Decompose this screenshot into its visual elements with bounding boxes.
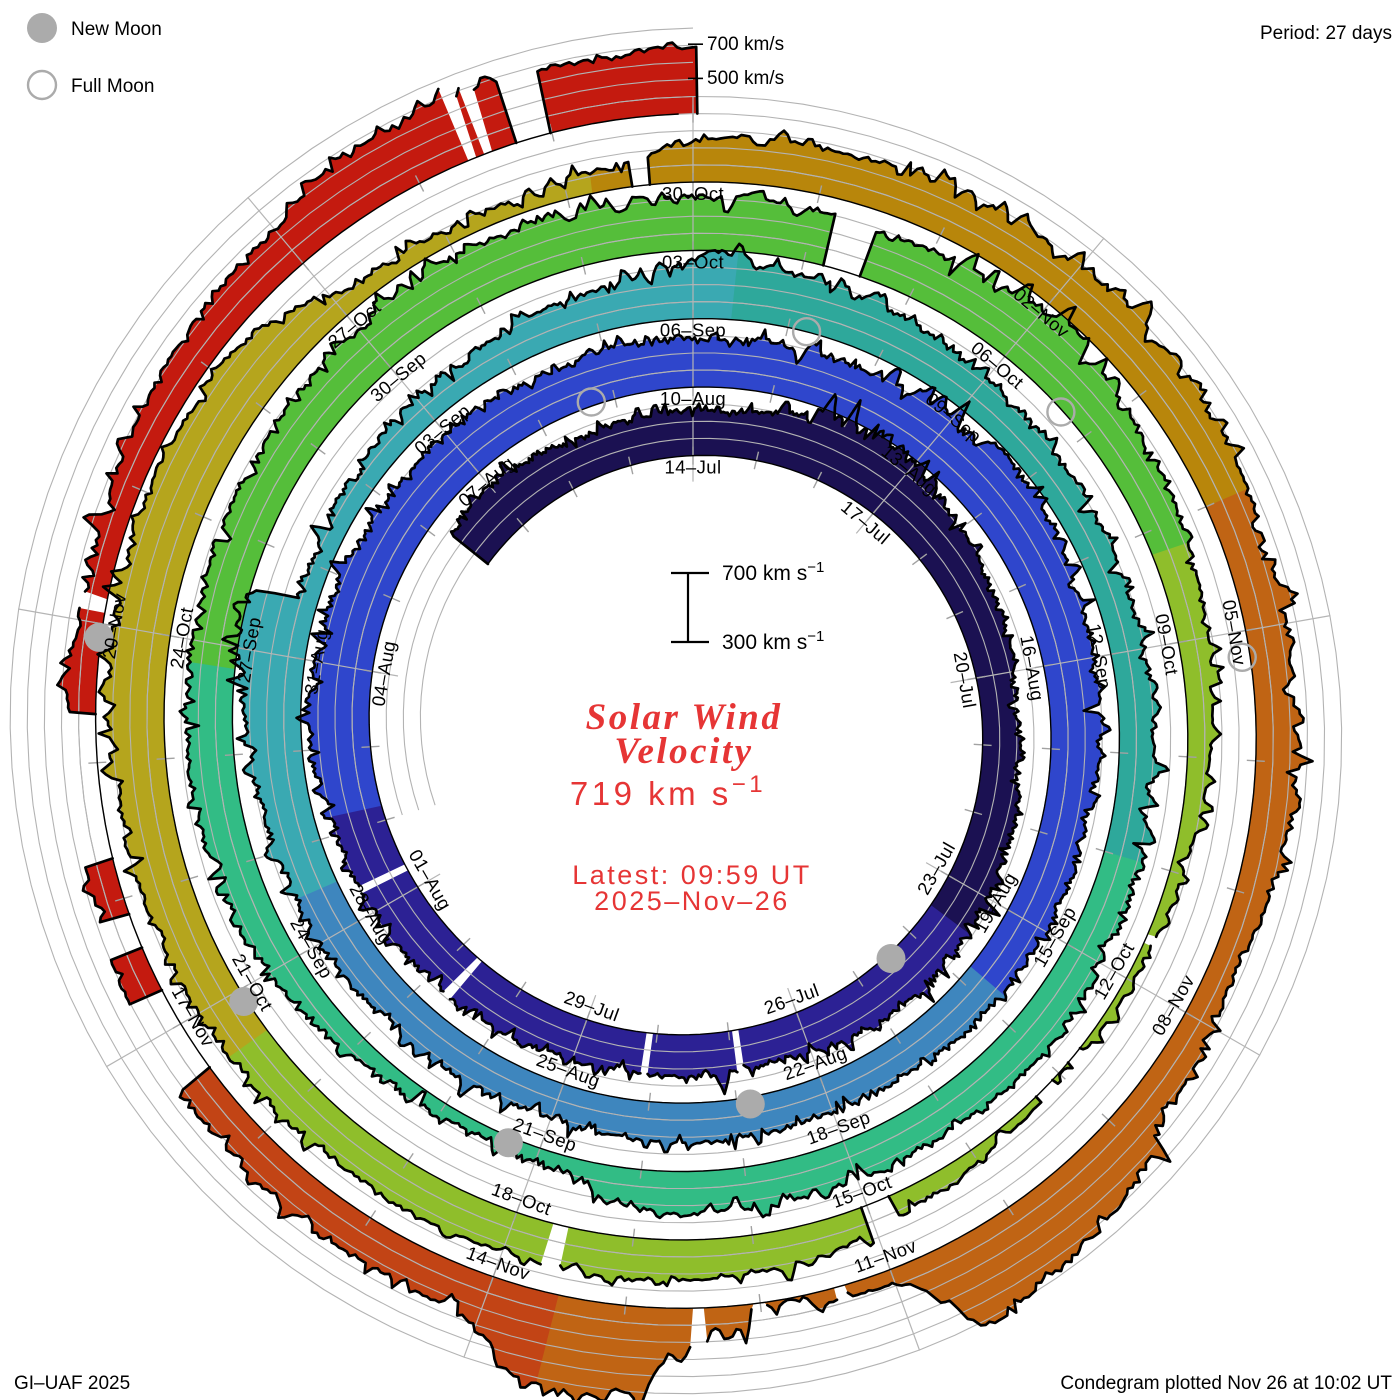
svg-text:GI–UAF 2025: GI–UAF 2025 <box>14 1373 130 1394</box>
svg-text:14–Jul: 14–Jul <box>665 456 722 477</box>
svg-text:Velocity: Velocity <box>614 731 753 772</box>
svg-text:New Moon: New Moon <box>71 19 162 40</box>
svg-text:2025–Nov–26: 2025–Nov–26 <box>594 886 790 916</box>
svg-text:Period: 27 days: Period: 27 days <box>1260 23 1392 44</box>
svg-text:500 km/s: 500 km/s <box>707 68 784 89</box>
svg-text:06–Sep: 06–Sep <box>660 320 726 341</box>
svg-text:30–Oct: 30–Oct <box>662 183 724 204</box>
svg-text:Condegram plotted Nov 26 at 10: Condegram plotted Nov 26 at 10:02 UT <box>1060 1373 1392 1394</box>
svg-text:700 km/s: 700 km/s <box>707 34 784 55</box>
svg-text:03–Oct: 03–Oct <box>662 251 724 272</box>
svg-text:Full Moon: Full Moon <box>71 76 154 97</box>
svg-text:10–Aug: 10–Aug <box>660 388 726 409</box>
